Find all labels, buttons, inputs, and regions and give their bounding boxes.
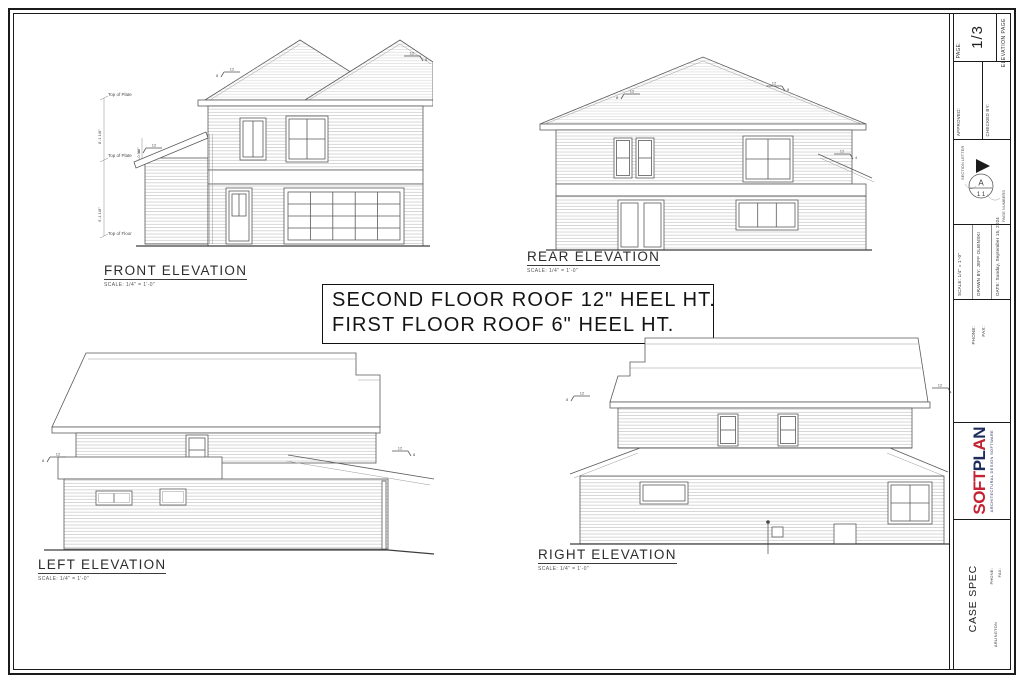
second-floor-height-dim: 8'-1 1/8" bbox=[97, 129, 102, 144]
project-name: CASE SPEC bbox=[967, 565, 979, 632]
softplan-logo: SOFTPLAN bbox=[971, 427, 988, 515]
page-cell: PAGE: 1/3 ELEVATION PAGE bbox=[954, 14, 1010, 62]
logo-n: N bbox=[970, 427, 989, 439]
section-letter: A bbox=[978, 179, 984, 188]
right-elevation-title: RIGHT ELEVATION bbox=[538, 547, 677, 564]
scale-value: SCALE: 1/4" = 1'-0" bbox=[957, 253, 962, 296]
rear-elevation-title: REAR ELEVATION bbox=[527, 249, 660, 266]
svg-text:12: 12 bbox=[398, 446, 403, 451]
title-block: PAGE: 1/3 ELEVATION PAGE APPROVED: CHECK… bbox=[953, 14, 1010, 669]
roof-heel-note-box: SECOND FLOOR ROOF 12" HEEL HT. FIRST FLO… bbox=[322, 284, 714, 344]
scale-cell: SCALE: 1/4" = 1'-0" bbox=[954, 225, 972, 299]
page-numbers-label: PAGE NUMBERS bbox=[1001, 190, 1006, 222]
date-cell: DATE: Sunday, September 15, 2024 bbox=[991, 225, 1010, 299]
svg-text:12: 12 bbox=[56, 452, 61, 457]
svg-text:12: 12 bbox=[580, 391, 585, 396]
project-cell: CASE SPEC PHONE: FAX: ARLINGTON bbox=[954, 520, 1010, 669]
phone-label: PHONE: bbox=[971, 326, 976, 344]
approved-cell: APPROVED: bbox=[954, 62, 982, 139]
section-symbol: SECTION LETTER PAGE NUMBERS A 1 1 bbox=[954, 140, 1009, 224]
phone-fax-cell: PHONE: FAX: bbox=[954, 300, 1010, 423]
checked-by-label: CHECKED BY: bbox=[985, 104, 990, 136]
svg-text:12: 12 bbox=[630, 89, 635, 94]
top-of-floor-label: Top of Floor bbox=[108, 231, 132, 236]
roof-pitch-marker: 12 8 bbox=[216, 67, 240, 79]
right-elevation-caption: RIGHT ELEVATION SCALE: 1/4" = 1'-0" bbox=[538, 546, 677, 572]
section-symbol-cell: SECTION LETTER PAGE NUMBERS A 1 1 bbox=[954, 140, 1010, 225]
page-number: 1/3 bbox=[969, 25, 986, 49]
svg-text:8: 8 bbox=[216, 73, 219, 78]
drawing-sheet: Top of Plate 8'-1 1/8" Top of Plate 1'-0… bbox=[0, 0, 1024, 683]
front-elevation-drawing: Top of Plate 8'-1 1/8" Top of Plate 1'-0… bbox=[88, 36, 433, 271]
svg-text:12: 12 bbox=[772, 81, 777, 86]
svg-text:8: 8 bbox=[566, 397, 569, 402]
drawn-by-cell: DRAWN BY: JEFF OLBINSKI bbox=[972, 225, 991, 299]
svg-text:8: 8 bbox=[787, 87, 790, 92]
rear-elevation-caption: REAR ELEVATION SCALE: 1/4" = 1'-0" bbox=[527, 248, 660, 274]
front-elevation-caption: FRONT ELEVATION SCALE: 1/4" = 1'-0" bbox=[104, 262, 247, 288]
section-numbers: 1 1 bbox=[977, 192, 986, 198]
svg-text:12: 12 bbox=[840, 149, 845, 154]
page-type-label: ELEVATION PAGE bbox=[1001, 18, 1007, 67]
right-elevation-scale: SCALE: 1/4" = 1'-0" bbox=[538, 566, 677, 572]
drawn-by-value: DRAWN BY: JEFF OLBINSKI bbox=[976, 232, 981, 296]
date-value: DATE: Sunday, September 15, 2024 bbox=[995, 217, 1000, 296]
rear-elevation-drawing: 12 8 12 8 12 4 bbox=[528, 50, 884, 252]
checked-by-cell: CHECKED BY: bbox=[982, 62, 1011, 139]
svg-text:12: 12 bbox=[938, 383, 943, 388]
softplan-logo-cell: SOFTPLAN ARCHITECTURAL DESIGN SOFTWARE bbox=[954, 423, 1010, 520]
note-line-1: SECOND FLOOR ROOF 12" HEEL HT. bbox=[332, 288, 704, 313]
top-of-plate-label: Top of Plate bbox=[108, 92, 132, 97]
logo-soft: SOFT bbox=[970, 471, 989, 514]
project-phone-label: PHONE: bbox=[989, 568, 994, 585]
svg-text:8: 8 bbox=[42, 458, 45, 463]
svg-text:4: 4 bbox=[855, 155, 858, 160]
right-elevation-drawing: 12 8 12 8 bbox=[540, 336, 958, 556]
svg-text:12: 12 bbox=[230, 67, 235, 72]
left-elevation-title: LEFT ELEVATION bbox=[38, 557, 166, 574]
note-line-2: FIRST FLOOR ROOF 6" HEEL HT. bbox=[332, 313, 704, 338]
front-elevation-scale: SCALE: 1/4" = 1'-0" bbox=[104, 282, 247, 288]
project-location: ARLINGTON bbox=[993, 622, 998, 647]
logo-a-triangle: A bbox=[970, 439, 989, 451]
front-elevation-title: FRONT ELEVATION bbox=[104, 263, 247, 280]
section-letter-label: SECTION LETTER bbox=[960, 146, 965, 180]
left-elevation-scale: SCALE: 1/4" = 1'-0" bbox=[38, 576, 166, 582]
left-elevation-caption: LEFT ELEVATION SCALE: 1/4" = 1'-0" bbox=[38, 556, 166, 582]
left-elevation-drawing: 12 8 12 8 bbox=[36, 343, 448, 565]
logo-tagline: ARCHITECTURAL DESIGN SOFTWARE bbox=[989, 430, 994, 512]
page-label: PAGE: bbox=[956, 42, 962, 58]
svg-text:12: 12 bbox=[152, 143, 157, 148]
roof-pitch-marker: 12 8 bbox=[392, 446, 416, 458]
project-fax-label: FAX: bbox=[997, 568, 1002, 577]
first-floor-height-dim: 9'-1 1/8" bbox=[97, 207, 102, 222]
approved-label: APPROVED: bbox=[956, 108, 961, 136]
page-cell-divider bbox=[996, 14, 997, 61]
logo-pl: PL bbox=[970, 451, 989, 472]
svg-text:12: 12 bbox=[410, 51, 415, 56]
drawing-info-cell: SCALE: 1/4" = 1'-0" DRAWN BY: JEFF OLBIN… bbox=[954, 225, 1010, 300]
title-block-double-line bbox=[949, 14, 950, 669]
rear-elevation-scale: SCALE: 1/4" = 1'-0" bbox=[527, 268, 660, 274]
top-of-plate-label: Top of Plate bbox=[108, 153, 132, 158]
svg-text:8: 8 bbox=[413, 452, 416, 457]
fax-label: FAX: bbox=[981, 326, 986, 337]
roof-pitch-marker: 12 8 bbox=[566, 391, 590, 403]
approval-cell: APPROVED: CHECKED BY: bbox=[954, 62, 1010, 140]
